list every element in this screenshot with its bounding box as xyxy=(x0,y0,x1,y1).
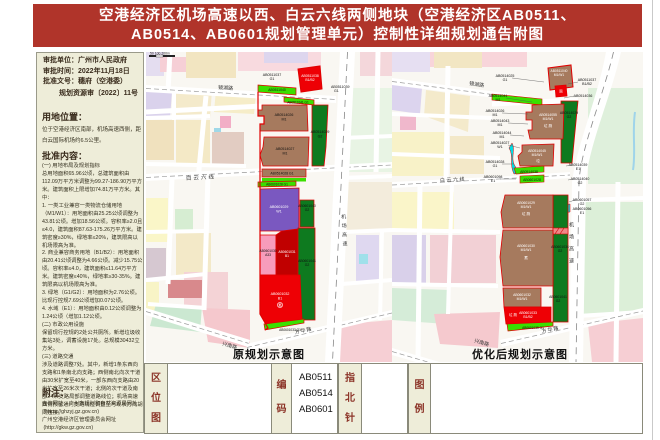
svg-text:AB0514026: AB0514026 xyxy=(275,113,294,117)
svg-text:M1/W1: M1/W1 xyxy=(521,248,532,252)
svg-text:G2: G2 xyxy=(305,208,310,212)
svg-text:垃: 垃 xyxy=(536,158,540,163)
svg-text:垃 厕: 垃 厕 xyxy=(544,123,553,128)
svg-text:AB0514029: AB0514029 xyxy=(311,130,330,134)
svg-text:AB0514027: AB0514027 xyxy=(276,147,295,151)
svg-text:AB0514036: AB0514036 xyxy=(574,94,593,98)
svg-text:M1: M1 xyxy=(500,135,505,139)
svg-text:M1: M1 xyxy=(498,123,503,127)
svg-text:AB0514028 G1: AB0514028 G1 xyxy=(270,172,293,176)
svg-text:垃 厕: 垃 厕 xyxy=(522,211,531,216)
svg-text:优化后规划示意图: 优化后规划示意图 xyxy=(472,347,568,361)
svg-text:原规划示意图: 原规划示意图 xyxy=(233,347,305,361)
svg-text:G2: G2 xyxy=(578,181,583,185)
svg-text:AB0511040: AB0511040 xyxy=(268,88,286,92)
svg-text:白云六线: 白云六线 xyxy=(440,176,466,184)
svg-text:M1/W1: M1/W1 xyxy=(517,297,528,301)
svg-text:E1: E1 xyxy=(491,179,495,183)
svg-text:G2: G2 xyxy=(305,263,310,267)
svg-text:镜湖路: 镜湖路 xyxy=(218,84,233,92)
svg-text:M1/W1: M1/W1 xyxy=(543,117,554,121)
svg-text:G1: G1 xyxy=(503,78,508,82)
svg-text:G2: G2 xyxy=(567,115,572,119)
svg-text:机场高速: 机场高速 xyxy=(568,221,574,270)
svg-text:W1: W1 xyxy=(276,210,281,214)
svg-text:B1/B2: B1/B2 xyxy=(305,78,314,82)
svg-text:B1: B1 xyxy=(285,254,289,258)
svg-text:蓄: 蓄 xyxy=(524,255,528,260)
svg-text:M1: M1 xyxy=(496,98,501,102)
svg-text:A33: A33 xyxy=(265,253,271,257)
svg-text:M1/W1: M1/W1 xyxy=(554,73,565,77)
svg-text:AB0601028 G1: AB0601028 G1 xyxy=(266,183,288,187)
svg-text:垃 厕: 垃 厕 xyxy=(509,312,517,317)
svg-text:G2: G2 xyxy=(558,249,563,253)
svg-text:W1: W1 xyxy=(497,145,502,149)
svg-text:E1: E1 xyxy=(576,167,580,171)
svg-text:G1: G1 xyxy=(493,164,498,168)
svg-text:AB0601032: AB0601032 xyxy=(271,292,290,296)
svg-text:B1: B1 xyxy=(278,297,282,301)
svg-text:G2: G2 xyxy=(318,135,323,139)
svg-text:AB0601029: AB0601029 xyxy=(270,205,289,209)
svg-text:G1: G1 xyxy=(270,77,275,81)
svg-text:蓄: 蓄 xyxy=(278,303,282,308)
svg-text:AB0601028: AB0601028 xyxy=(523,178,541,182)
svg-text:B1/B2: B1/B2 xyxy=(523,315,532,319)
svg-text:M1: M1 xyxy=(283,152,288,156)
svg-text:M1: M1 xyxy=(282,118,287,122)
svg-text:M1/W1: M1/W1 xyxy=(532,153,543,157)
svg-text:M1: M1 xyxy=(493,113,498,117)
svg-text:G1: G1 xyxy=(334,89,339,93)
svg-text:AB0514038: AB0514038 xyxy=(520,170,538,174)
svg-text:G2: G2 xyxy=(580,202,585,206)
svg-text:E1: E1 xyxy=(580,211,584,215)
svg-text:B1/B2: B1/B2 xyxy=(582,82,592,86)
svg-text:M1/W1: M1/W1 xyxy=(521,205,532,209)
svg-text:G2: G2 xyxy=(556,299,561,303)
svg-text:AB0511041 G1: AB0511041 G1 xyxy=(287,101,309,105)
svg-text:50 100 200m: 50 100 200m xyxy=(150,52,170,56)
